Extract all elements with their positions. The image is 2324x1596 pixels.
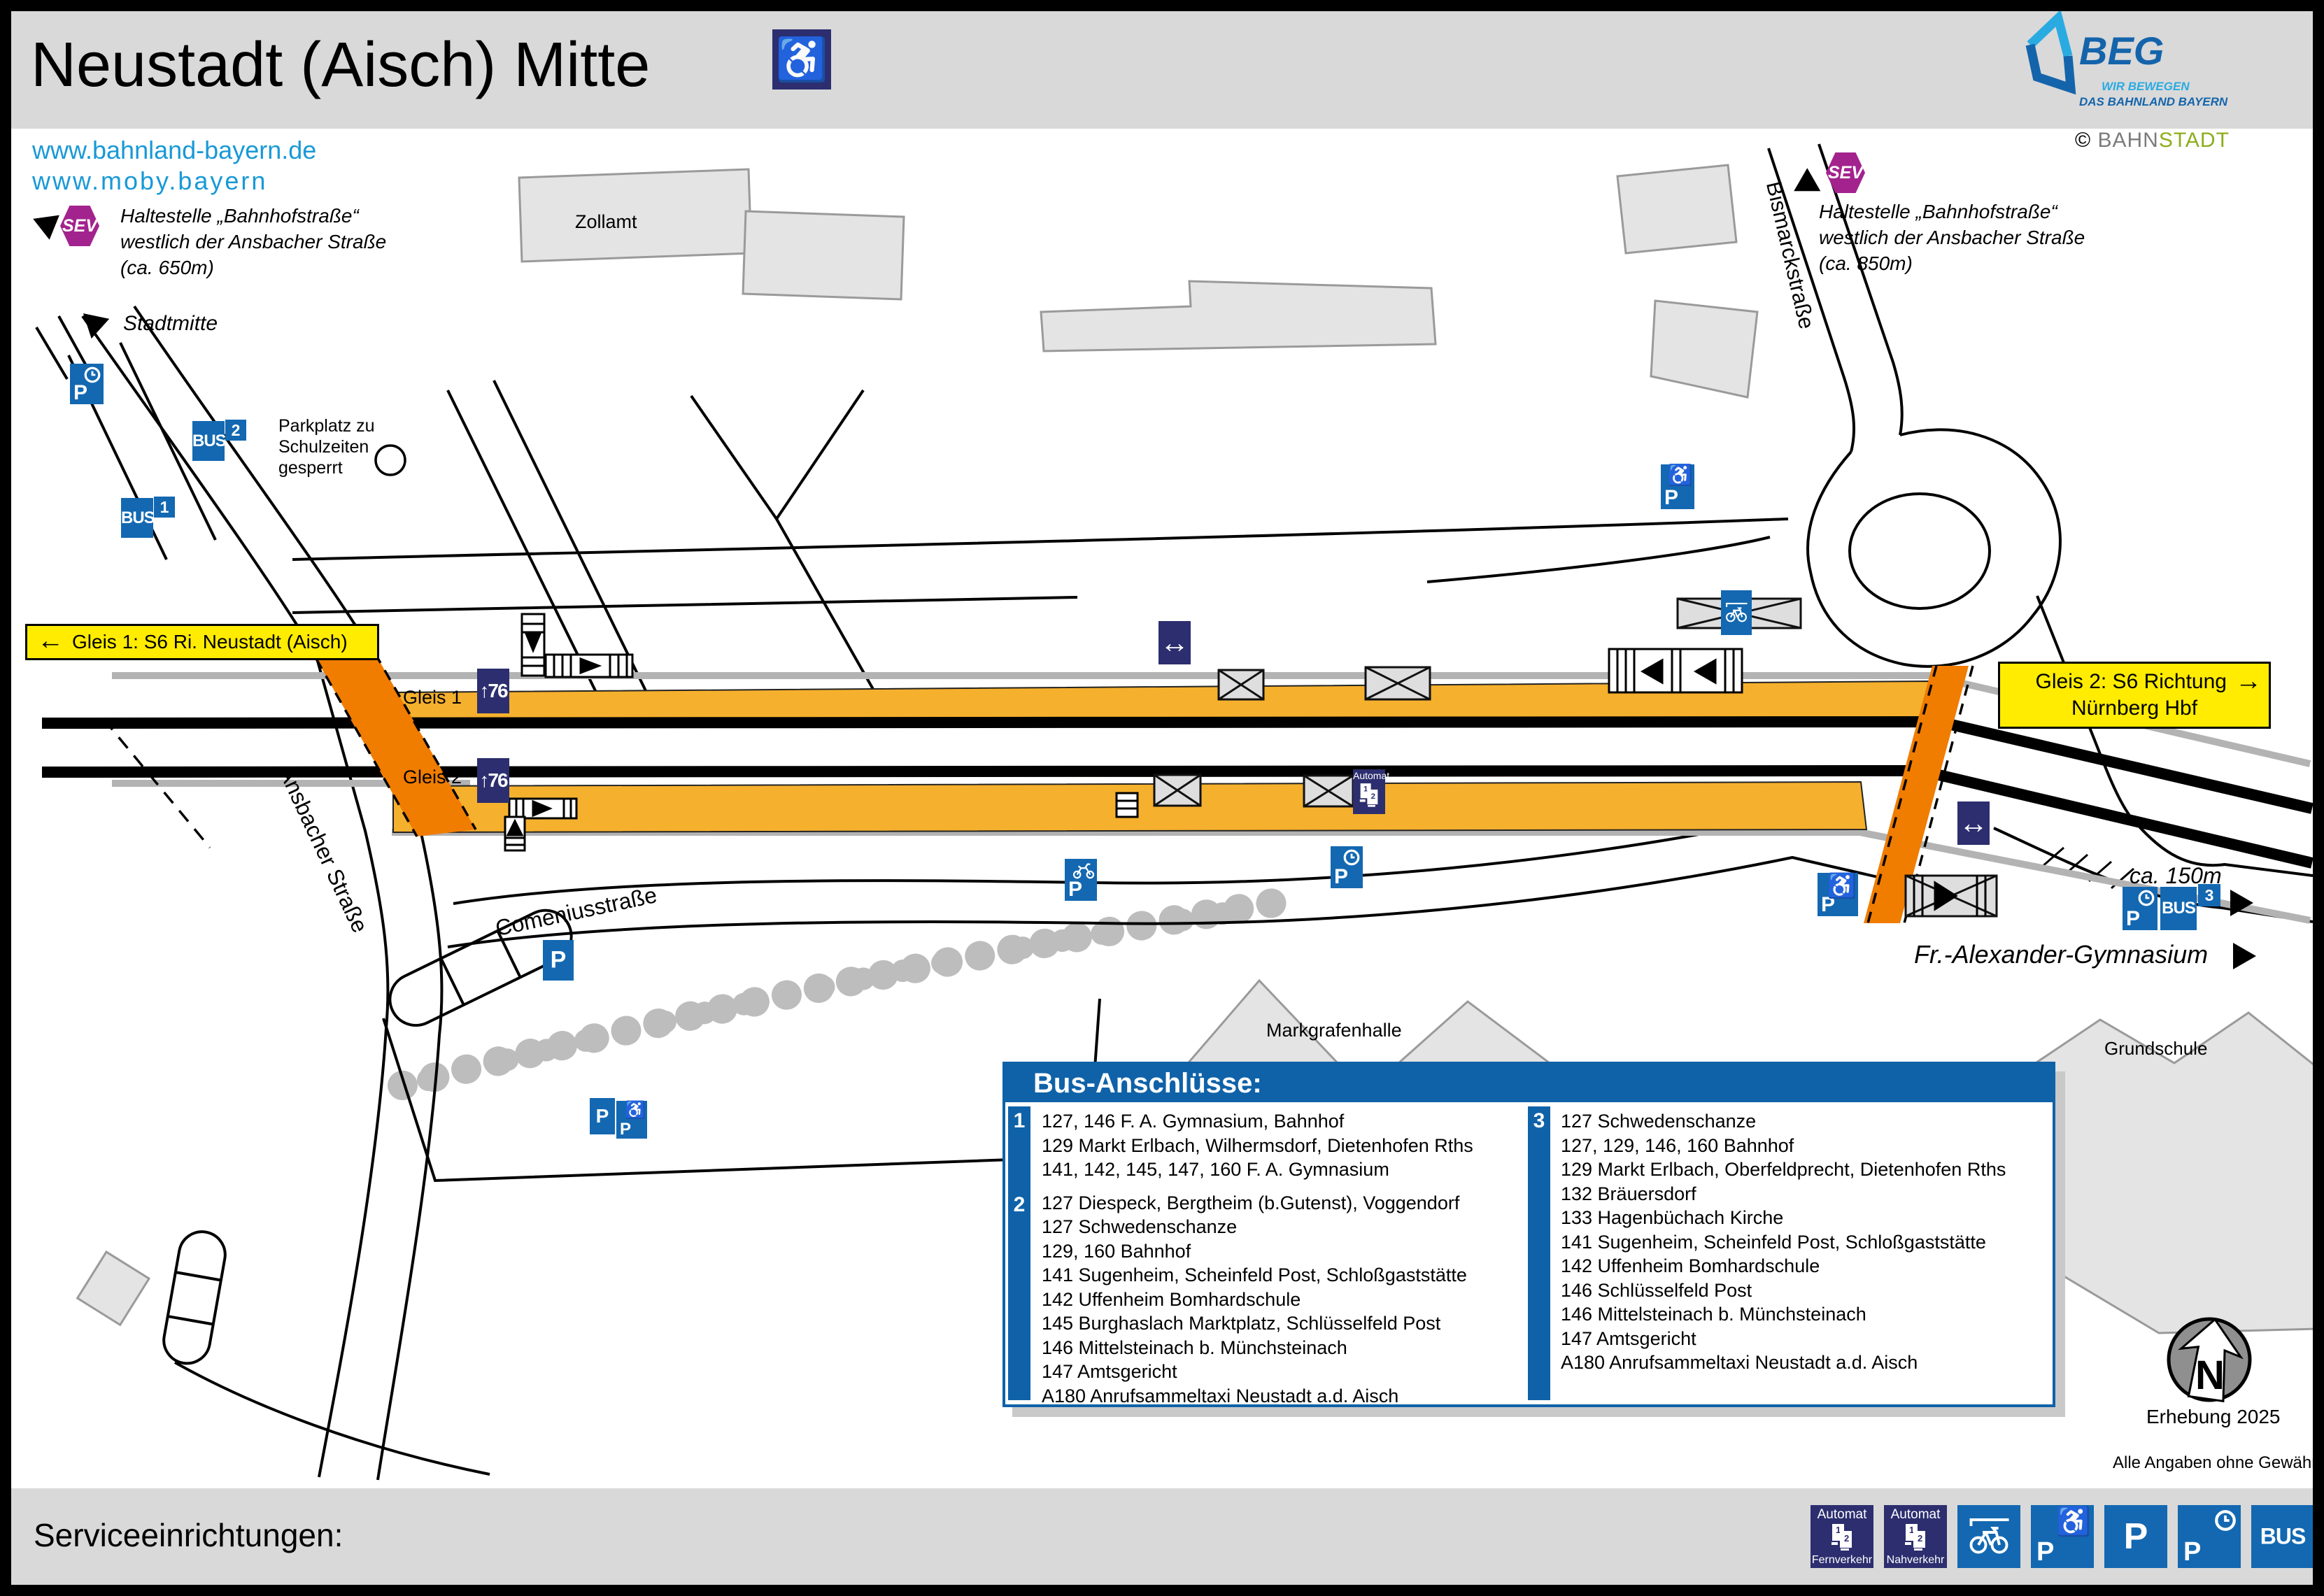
disabled-parking-icon-north: P ♿ bbox=[1661, 464, 1694, 509]
disabled-parking-icon-south: P ♿ bbox=[616, 1101, 647, 1139]
bidirectional-access-icon-east: ↔ bbox=[1957, 801, 1990, 845]
clock-icon bbox=[2213, 1509, 2237, 1532]
bus-route-line: 133 Hagenbüchach Kirche bbox=[1561, 1206, 2006, 1230]
bus-route-line: 127, 129, 146, 160 Bahnhof bbox=[1561, 1134, 2006, 1158]
ticket-machine-regional-icon: Automat 1 2 Nahverkehr bbox=[1884, 1505, 1947, 1568]
bus-routes-column-2: 127 Schwedenschanze 127, 129, 146, 160 B… bbox=[1561, 1109, 2006, 1375]
p-clock-icon-mid: P bbox=[1331, 846, 1363, 888]
bus-route-line: 145 Burghaslach Marktplatz, Schlüsselfel… bbox=[1042, 1311, 1473, 1336]
gleis1-label: Gleis 1 bbox=[403, 687, 462, 708]
parkplatz-note: Parkplatz zu Schulzeiten gesperrt bbox=[278, 415, 402, 478]
stop-number-3: 3 bbox=[1528, 1109, 1550, 1133]
bus-route-line: 127, 146 F. A. Gymnasium, Bahnhof bbox=[1042, 1109, 1473, 1134]
bus-route-line: 129 Markt Erlbach, Oberfeldprecht, Diete… bbox=[1561, 1157, 2006, 1182]
bus-stop-2-icon: BUS bbox=[192, 421, 225, 461]
sev-note-right: Haltestelle „Bahnhofstraße“ westlich der… bbox=[1819, 199, 2085, 276]
grundschule-label: Grundschule bbox=[2104, 1038, 2207, 1060]
gleis1-direction-sign: ← Gleis 1: S6 Ri. Neustadt (Aisch) bbox=[25, 624, 379, 660]
bus-stop-1-icon: BUS bbox=[121, 498, 153, 538]
disclaimer-label: Alle Angaben ohne Gewähr! bbox=[2113, 1453, 2322, 1473]
right-arrow: → bbox=[2235, 667, 2262, 697]
p-clock-icon: P bbox=[70, 364, 104, 404]
bus-route-line: A180 Anrufsammeltaxi Neustadt a.d. Aisch bbox=[1042, 1384, 1473, 1409]
stadtmitte-label: Stadtmitte bbox=[123, 312, 218, 336]
stairs bbox=[505, 614, 1985, 916]
bus-route-line: 147 Amtsgericht bbox=[1042, 1360, 1473, 1384]
markgrafenhalle-label: Markgrafenhalle bbox=[1266, 1020, 1402, 1041]
bus-connections-title: Bus-Anschlüsse: bbox=[1005, 1064, 2053, 1102]
bus-route-line: 141 Sugenheim, Scheinfeld Post, Schloßga… bbox=[1042, 1263, 1473, 1288]
disabled-parking-icon-east: P ♿ bbox=[1818, 873, 1858, 916]
station-map-poster: N Neustadt (Aisch) Mitte ♿ BEG WIR BEWEG… bbox=[0, 0, 2324, 1596]
svg-text:2: 2 bbox=[1844, 1533, 1849, 1544]
beg-tagline-1: WIR BEWEGEN bbox=[2102, 80, 2190, 94]
north-arrow: N bbox=[2169, 1316, 2250, 1403]
beg-tagline-2: DAS BAHNLAND BAYERN bbox=[2079, 95, 2227, 109]
ticket-icon: 1 2 bbox=[1359, 782, 1380, 807]
footer-title: Serviceeinrichtungen: bbox=[34, 1516, 343, 1554]
survey-year-label: Erhebung 2025 bbox=[2146, 1406, 2281, 1428]
stop-number-rail-2 bbox=[1528, 1106, 1550, 1400]
parking-bays bbox=[160, 902, 580, 1367]
bus-connections-panel: Bus-Anschlüsse: 1 2 3 127, 146 F. A. Gym… bbox=[1002, 1062, 2055, 1407]
stop-number-rail-1 bbox=[1008, 1106, 1030, 1400]
gleis2-label: Gleis 2 bbox=[403, 767, 462, 788]
moped-icon bbox=[1072, 860, 1096, 880]
bus-route-line: 141, 142, 145, 147, 160 F. A. Gymnasium bbox=[1042, 1157, 1473, 1182]
bus-routes-column-1: 127, 146 F. A. Gymnasium, Bahnhof 129 Ma… bbox=[1042, 1109, 1473, 1408]
bidirectional-access-icon-west: ↔ bbox=[1159, 621, 1191, 664]
copyright-symbol: © bbox=[2075, 129, 2091, 152]
p-clock-icon-gymnasium: P bbox=[2123, 887, 2158, 930]
bus-route-line: 132 Bräuersdorf bbox=[1561, 1182, 2006, 1206]
bus-route-line: 129, 160 Bahnhof bbox=[1042, 1239, 1473, 1264]
bus-route-line: 127 Schwedenschanze bbox=[1561, 1109, 2006, 1134]
bus-stop-3-number: 3 bbox=[2198, 884, 2220, 906]
ticket-icon: 1 2 bbox=[1830, 1523, 1854, 1551]
svg-text:2: 2 bbox=[1371, 792, 1375, 801]
bike-parking-legend-icon bbox=[1957, 1505, 2020, 1568]
parking-icon-comenius: P bbox=[543, 940, 574, 981]
platform-height-76-icon-gleis2: ↑76 bbox=[477, 758, 509, 803]
gleis2-direction-sign: Gleis 2: S6 Richtung → Nürnberg Hbf bbox=[1998, 662, 2271, 729]
zollamt-label: Zollamt bbox=[575, 211, 637, 233]
svg-text:N: N bbox=[2195, 1353, 2225, 1398]
page-title: Neustadt (Aisch) Mitte bbox=[31, 29, 650, 101]
link-moby-bayern: www.moby.bayern bbox=[32, 166, 267, 196]
wheelchair-icon: ♿ bbox=[625, 1102, 646, 1120]
bicycle-icon bbox=[1966, 1513, 2012, 1560]
bus-stop-2-number: 2 bbox=[225, 420, 246, 441]
wheelchair-icon: ♿ bbox=[1668, 465, 1693, 487]
wheelchair-icon: ♿ bbox=[2056, 1506, 2091, 1537]
bus-route-line: 146 Mittelsteinach b. Münchsteinach bbox=[1042, 1336, 1473, 1360]
shelters bbox=[1154, 599, 1997, 916]
ticket-icon: 1 2 bbox=[1904, 1523, 1927, 1551]
bus-stop-1-number: 1 bbox=[154, 497, 175, 518]
parking-icon-south: P bbox=[590, 1098, 615, 1134]
ticket-machine-icon-platform: Automat 1 2 bbox=[1353, 769, 1385, 814]
bus-route-line: 142 Uffenheim Bomhardschule bbox=[1042, 1288, 1473, 1312]
bahnstadt-stadt: STADT bbox=[2159, 129, 2230, 152]
wheelchair-icon: ♿ bbox=[772, 35, 831, 85]
bus-route-line: A180 Anrufsammeltaxi Neustadt a.d. Aisch bbox=[1561, 1351, 2006, 1375]
accessible-station-icon: ♿ bbox=[772, 29, 831, 90]
disabled-parking-legend-icon: P ♿ bbox=[2031, 1505, 2094, 1568]
sev-note-left: Haltestelle „Bahnhofstraße“ westlich der… bbox=[120, 203, 386, 280]
link-bahnland-bayern: www.bahnland-bayern.de bbox=[32, 136, 316, 165]
bus-stop-3-icon: BUS bbox=[2160, 887, 2197, 930]
moped-parking-icon: P bbox=[1065, 859, 1097, 901]
bus-route-line: 127 Diespeck, Bergtheim (b.Gutenst), Vog… bbox=[1042, 1191, 1473, 1216]
bus-legend-icon: BUS bbox=[2251, 1505, 2314, 1568]
bus-route-line: 147 Amtsgericht bbox=[1561, 1327, 2006, 1351]
platform-height-76-icon-gleis1: ↑76 bbox=[477, 669, 509, 713]
clock-icon bbox=[83, 366, 101, 384]
wheelchair-icon: ♿ bbox=[1827, 874, 1857, 899]
beg-wordmark: BEG bbox=[2079, 28, 2164, 73]
bus-stop-3-direction-arrow bbox=[2230, 890, 2253, 916]
stop-number-2: 2 bbox=[1008, 1193, 1030, 1217]
stop-number-1: 1 bbox=[1008, 1109, 1030, 1133]
bus-route-line: 127 Schwedenschanze bbox=[1042, 1215, 1473, 1239]
bahnstadt-bahn: BAHN bbox=[2097, 129, 2158, 152]
clock-icon bbox=[2137, 889, 2155, 907]
bus-route-line: 142 Uffenheim Bomhardschule bbox=[1561, 1254, 2006, 1278]
parking-legend-icon: P bbox=[2104, 1505, 2167, 1568]
beg-logo-diamond bbox=[2030, 18, 2071, 88]
bahnstadt-credit: © BAHNSTADT bbox=[2075, 129, 2230, 152]
clock-icon bbox=[1342, 848, 1361, 867]
bus-route-line: 129 Markt Erlbach, Wilhermsdorf, Dietenh… bbox=[1042, 1134, 1473, 1158]
left-arrow: ← bbox=[37, 626, 64, 656]
bus-route-line: 146 Schlüsselfeld Post bbox=[1561, 1278, 2006, 1303]
bus-route-line: 141 Sugenheim, Scheinfeld Post, Schloßga… bbox=[1561, 1230, 2006, 1255]
svg-text:2: 2 bbox=[1918, 1533, 1922, 1544]
bus-route-line: 146 Mittelsteinach b. Münchsteinach bbox=[1561, 1302, 2006, 1327]
ticket-machine-longdistance-icon: Automat 1 2 Fernverkehr bbox=[1811, 1505, 1873, 1568]
gymnasium-direction-arrow bbox=[2233, 943, 2256, 969]
bike-parking-icon bbox=[1721, 590, 1752, 635]
p-clock-legend-icon: P bbox=[2178, 1505, 2241, 1568]
gymnasium-label: Fr.-Alexander-Gymnasium bbox=[1914, 940, 2208, 969]
bicycle-icon bbox=[1724, 593, 1749, 632]
